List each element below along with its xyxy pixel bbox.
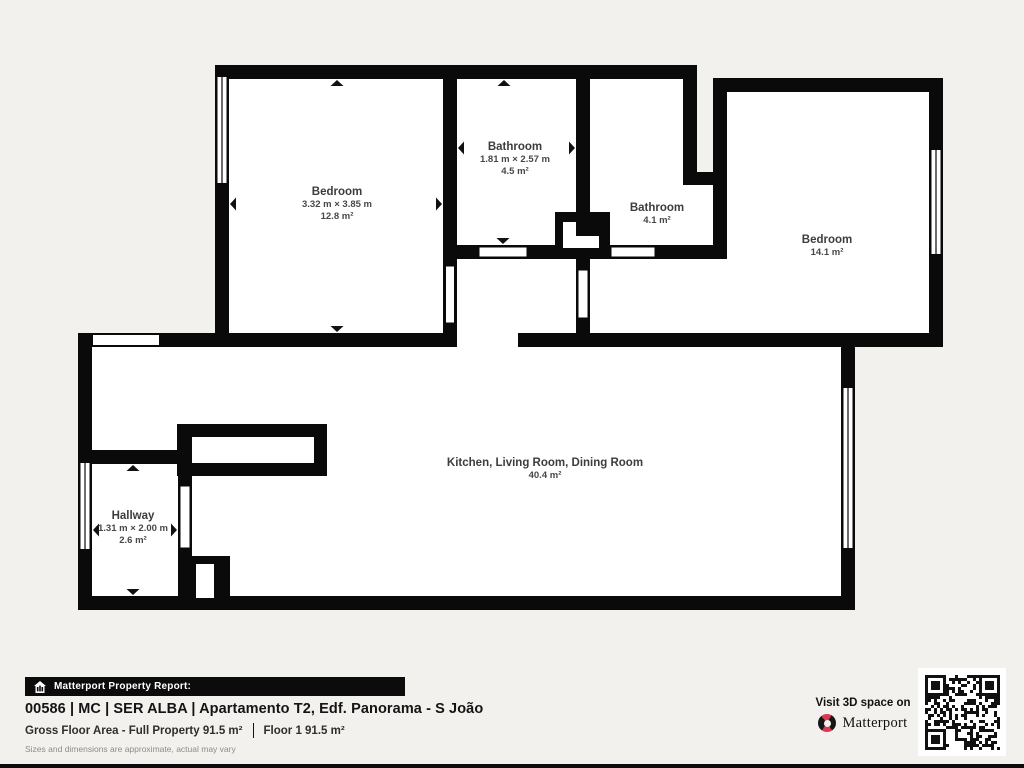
qr-code xyxy=(918,668,1006,756)
door-icon-vestibule xyxy=(578,270,588,318)
gross-floor-area: Gross Floor Area - Full Property 91.5 m² xyxy=(25,725,243,737)
window-icon-hallway xyxy=(81,463,90,549)
room-area-value: 4.1 m² xyxy=(630,215,684,227)
window-icon-bedroom-2 xyxy=(932,150,941,254)
floor-1-area: Floor 1 91.5 m² xyxy=(264,725,345,737)
room-label-hallway: Hallway 1.31 m × 2.00 m 2.6 m² xyxy=(98,510,168,547)
room-area-value: 14.1 m² xyxy=(802,247,852,259)
room-name: Bathroom xyxy=(630,202,684,215)
room-label-bathroom-1: Bathroom 1.81 m × 2.57 m 4.5 m² xyxy=(480,141,550,178)
door-icon-bathroom-2 xyxy=(611,247,655,257)
room-label-bedroom-2: Bedroom 14.1 m² xyxy=(802,234,852,259)
room-area-bedroom-2 xyxy=(718,85,938,343)
page-title: 00586 | MC | SER ALBA | Apartamento T2, … xyxy=(25,701,483,717)
matterport-logo-icon xyxy=(818,714,836,732)
room-dimensions: 1.81 m × 2.57 m xyxy=(480,154,550,166)
room-area-vestibule xyxy=(450,250,585,344)
report-bar-label: Matterport Property Report: xyxy=(54,681,191,692)
brand-row: Matterport xyxy=(788,714,938,732)
room-label-kitchen-living-dining: Kitchen, Living Room, Dining Room 40.4 m… xyxy=(447,457,643,482)
room-name: Bedroom xyxy=(302,186,372,199)
window-icon-kitchen xyxy=(844,388,853,548)
bottom-edge-bar xyxy=(0,764,1024,768)
window-icon-kitchen-top xyxy=(93,335,159,345)
qr-code-pattern xyxy=(925,675,1000,750)
room-name: Bedroom xyxy=(802,234,852,247)
room-area-bathroom-2-upper xyxy=(583,70,690,182)
divider xyxy=(253,723,254,738)
disclaimer-text: Sizes and dimensions are approximate, ac… xyxy=(25,744,236,754)
visit-3d-label: Visit 3D space on xyxy=(788,697,938,709)
house-chart-icon xyxy=(34,681,46,693)
floor-plan xyxy=(0,0,1024,660)
report-bar: Matterport Property Report: xyxy=(25,677,405,696)
room-name: Hallway xyxy=(98,510,168,523)
room-area-value: 40.4 m² xyxy=(447,470,643,482)
matterport-wordmark: Matterport xyxy=(842,715,907,732)
room-dimensions: 1.31 m × 2.00 m xyxy=(98,523,168,535)
room-area-value: 12.8 m² xyxy=(302,211,372,223)
room-name: Bathroom xyxy=(480,141,550,154)
room-dimensions: 3.32 m × 3.85 m xyxy=(302,199,372,211)
door-icon-hallway xyxy=(180,486,190,548)
area-summary: Gross Floor Area - Full Property 91.5 m²… xyxy=(25,723,345,738)
room-label-bedroom-1: Bedroom 3.32 m × 3.85 m 12.8 m² xyxy=(302,186,372,223)
room-area-value: 4.5 m² xyxy=(480,166,550,178)
room-area-value: 2.6 m² xyxy=(98,535,168,547)
door-icon-bathroom-1 xyxy=(479,247,527,257)
room-name: Kitchen, Living Room, Dining Room xyxy=(447,457,643,470)
visit-3d-block: Visit 3D space on Matterport xyxy=(788,697,938,732)
footer: Matterport Property Report: 00586 | MC |… xyxy=(0,668,1024,768)
room-label-bathroom-2: Bathroom 4.1 m² xyxy=(630,202,684,227)
window-icon-bedroom-1 xyxy=(218,77,227,183)
door-icon-bedroom-1 xyxy=(446,266,455,323)
